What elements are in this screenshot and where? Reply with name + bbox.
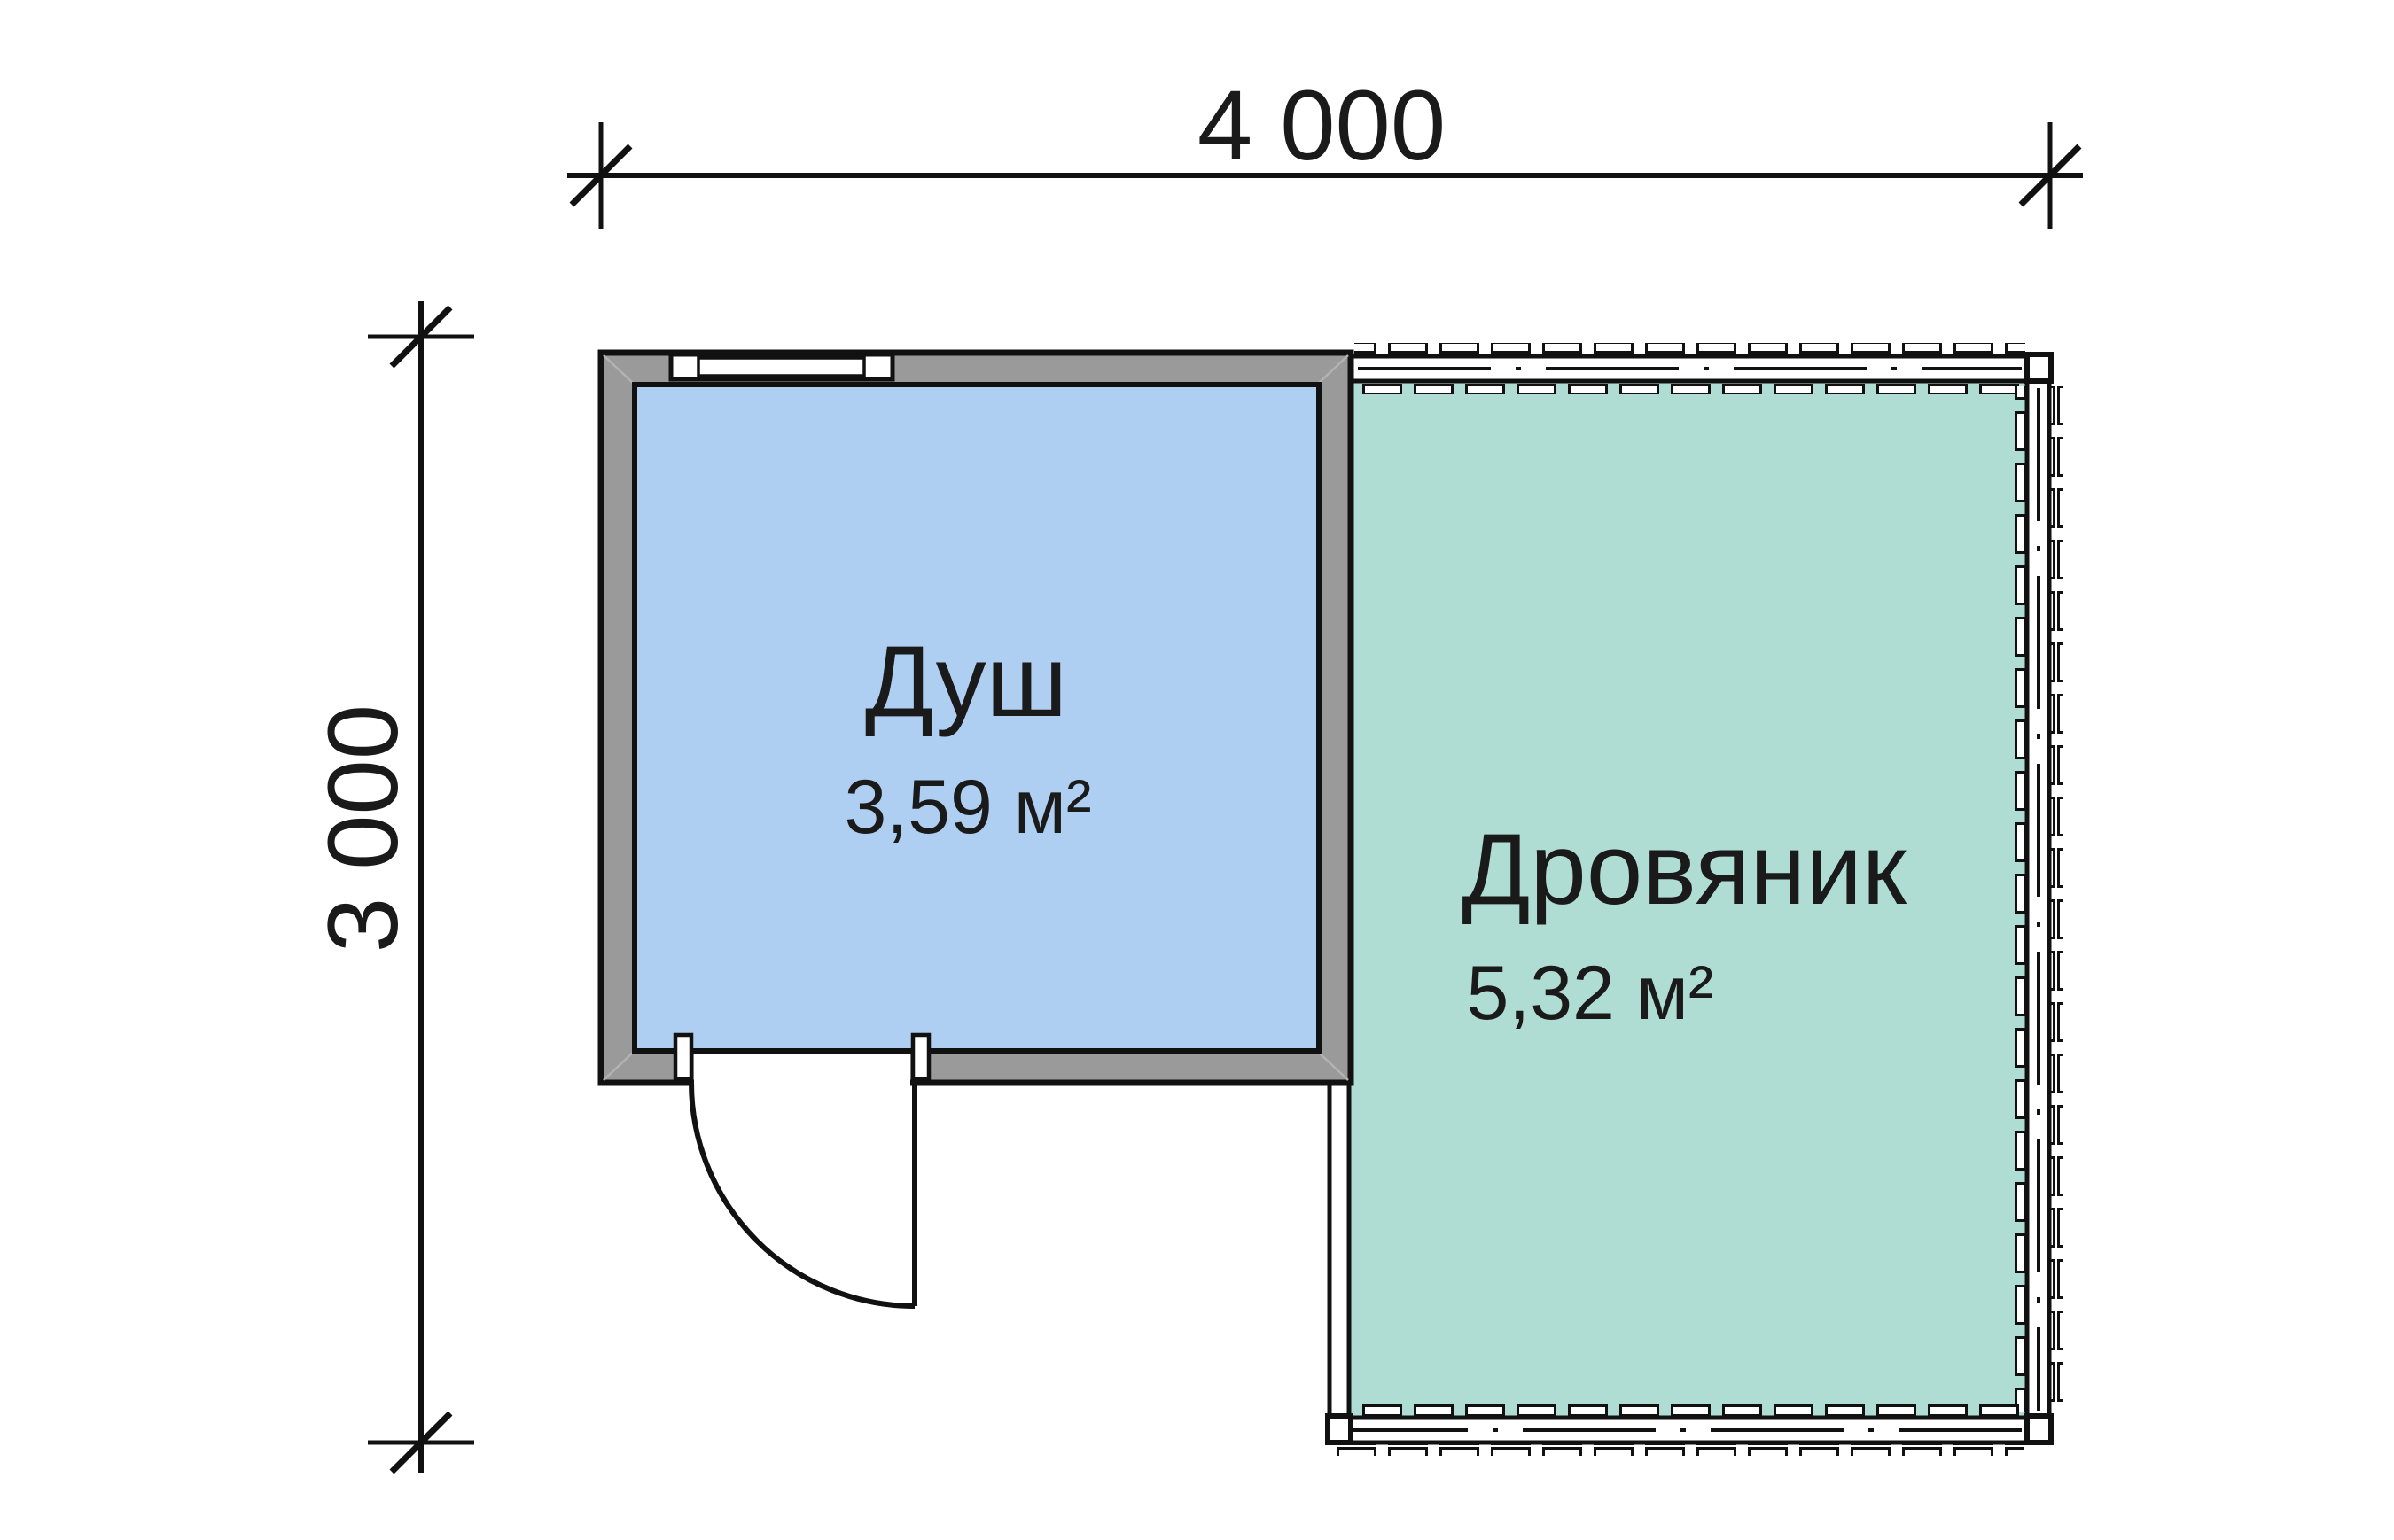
- floor-plan: Душ 3,59 м² Дровяник 5,32 м² 4 000 3 000: [0, 0, 2394, 1540]
- room-area-woodshed: 5,32 м²: [1466, 951, 1713, 1036]
- door-jamb-right: [913, 1035, 929, 1079]
- dimension-left-label: 3 000: [308, 704, 418, 953]
- room-label-woodshed: Дровяник: [1462, 813, 1907, 926]
- room-area-shower: 3,59 м²: [844, 765, 1091, 850]
- corner-post-bottom-right: [2027, 1416, 2051, 1443]
- lattice-wall-right: [2013, 381, 2063, 1418]
- room-label-shower: Душ: [865, 626, 1067, 738]
- corner-post-top-right: [2027, 354, 2051, 381]
- door-jamb-left: [675, 1035, 691, 1079]
- dimension-top-label: 4 000: [1197, 70, 1446, 181]
- woodshed-left-wall: [1330, 1083, 1349, 1418]
- corner-post-bottom-left: [1328, 1416, 1351, 1443]
- lattice-wall-top: [1351, 343, 2027, 394]
- window: [671, 354, 893, 379]
- window-sash: [698, 358, 864, 376]
- door-opening: [694, 1054, 910, 1088]
- lattice-wall-bottom: [1328, 1404, 2027, 1456]
